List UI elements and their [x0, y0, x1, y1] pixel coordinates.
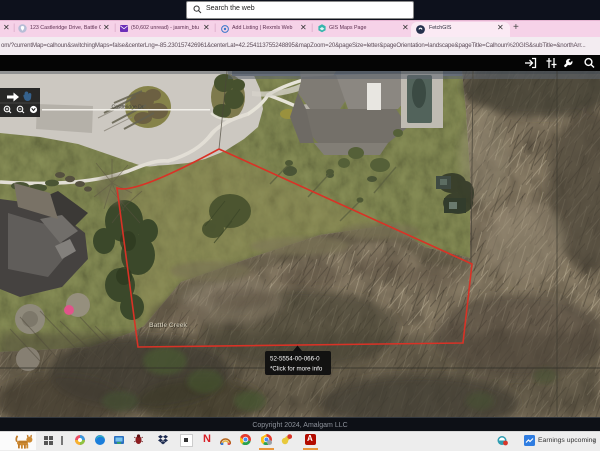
svg-text:Battle Creek: Battle Creek	[149, 322, 187, 329]
svg-text:Copyright 2024, Amalgam LLC: Copyright 2024, Amalgam LLC	[252, 422, 347, 429]
svg-text:*Click for more info: *Click for more info	[270, 366, 323, 373]
svg-text:52-5554-00-066-0: 52-5554-00-066-0	[270, 356, 320, 363]
svg-text:Castleridge Dr.: Castleridge Dr.	[111, 105, 144, 111]
